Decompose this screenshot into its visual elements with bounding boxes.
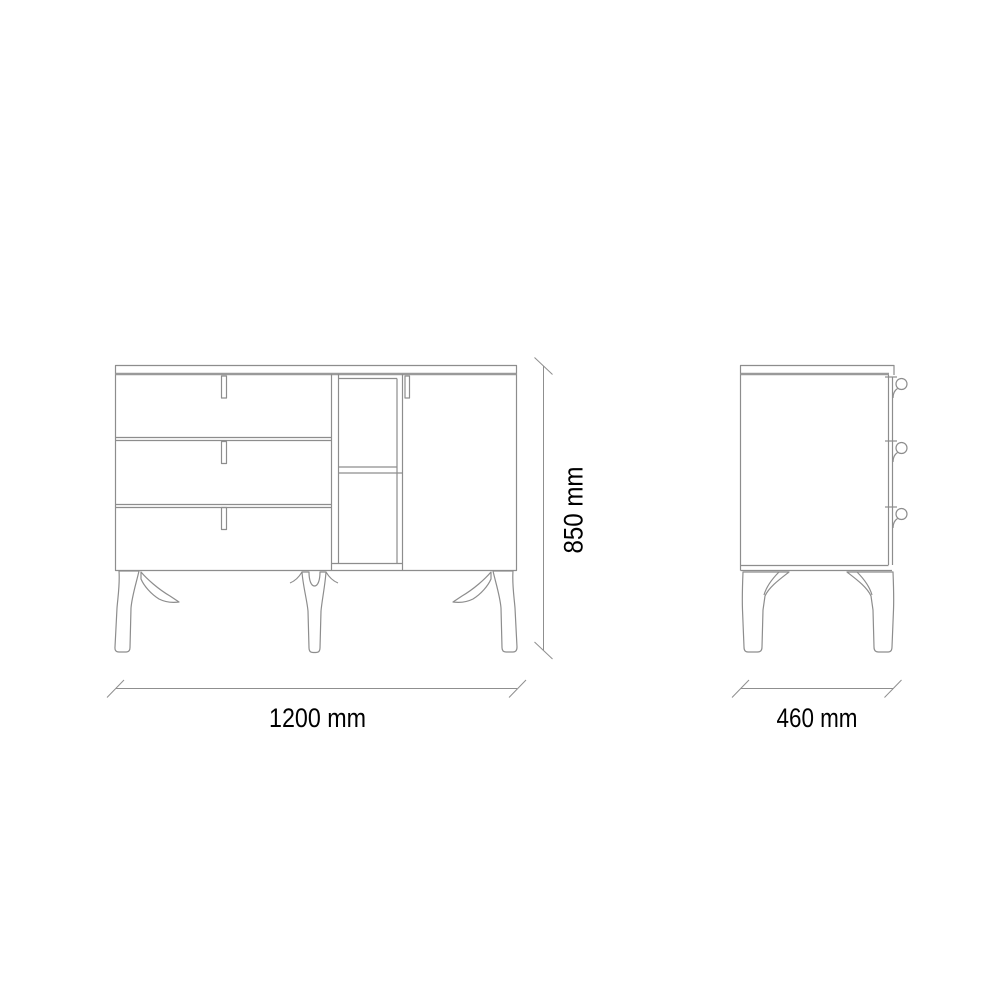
dimension-depth: 460 mm xyxy=(732,680,902,733)
front-leg-middle-flare-right xyxy=(326,572,338,583)
dimension-width: 1200 mm xyxy=(107,680,526,733)
side-leg-front-post xyxy=(742,572,789,652)
dimension-height-label: 850 mm xyxy=(559,467,589,554)
drawer-dividers xyxy=(116,438,332,508)
side-view xyxy=(741,366,908,653)
door-pull-slot xyxy=(405,376,410,398)
front-leg-left-bracket xyxy=(141,572,179,602)
front-leg-right-post xyxy=(493,571,517,652)
dimension-depth-label: 460 mm xyxy=(777,703,858,733)
dimension-height: 850 mm xyxy=(535,358,589,660)
side-leg-front-bracket xyxy=(764,572,779,595)
front-view xyxy=(115,366,517,653)
door xyxy=(405,376,410,398)
front-leg-left xyxy=(115,571,179,652)
side-leg-back-bracket xyxy=(857,572,872,595)
drawer-3-pull-slot xyxy=(222,508,227,530)
side-pull-1-neck xyxy=(893,389,898,399)
front-leg-middle xyxy=(290,572,338,653)
front-leg-right-bracket xyxy=(453,572,491,602)
side-carcass-outline xyxy=(741,366,895,571)
drawer-1-pull-slot xyxy=(222,376,227,398)
side-leg-front xyxy=(742,572,789,652)
technical-drawing-sideboard: 850 mm 1200 mm 460 mm xyxy=(0,0,1000,1000)
side-pull-2-neck xyxy=(893,453,898,463)
shelf-compartment xyxy=(332,374,404,570)
side-leg-back xyxy=(847,572,894,652)
front-leg-middle-flare-left xyxy=(290,572,302,583)
side-pull-3-knob xyxy=(896,509,907,520)
front-carcass-outline xyxy=(116,366,517,571)
side-pull-3-neck xyxy=(893,519,898,529)
drawer-2-pull-slot xyxy=(222,442,227,464)
side-pull-1-knob xyxy=(896,379,907,390)
side-pull-2-knob xyxy=(896,443,907,454)
drawer-pulls xyxy=(222,376,227,530)
dimension-width-label: 1200 mm xyxy=(269,703,366,733)
front-leg-right xyxy=(453,571,517,652)
front-leg-middle-post xyxy=(302,572,326,653)
front-leg-left-post xyxy=(115,571,139,652)
side-leg-back-post xyxy=(847,572,894,652)
